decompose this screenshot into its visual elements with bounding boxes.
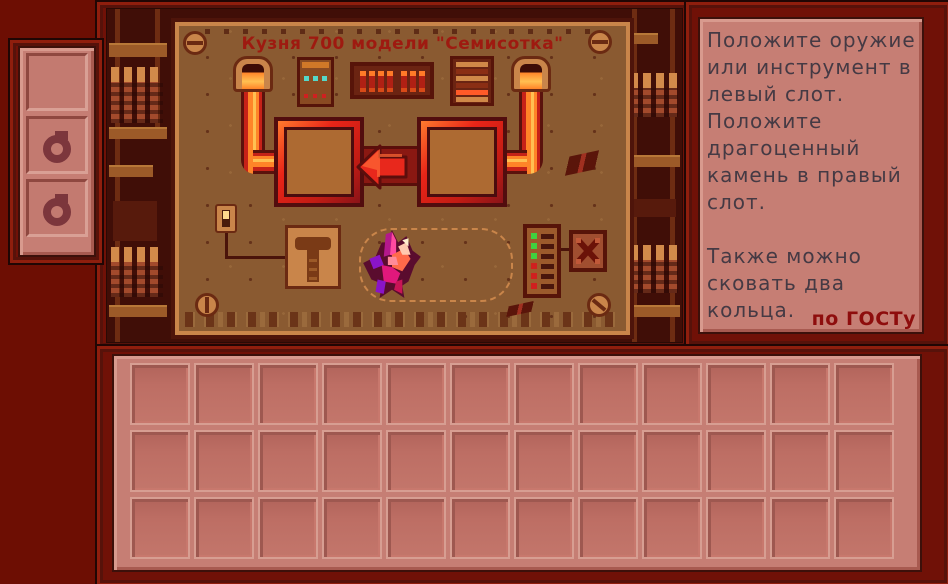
inventory-slot[interactable]: [386, 430, 446, 492]
inventory-panel-face: [112, 354, 922, 572]
indicator-light: [322, 76, 327, 81]
wire-decor: [225, 256, 287, 259]
instruction-panel-face: Положите оружие или инструмент в левый с…: [698, 17, 924, 334]
vent-panel: [450, 56, 494, 106]
led-row: [531, 241, 557, 251]
ring-slot[interactable]: [26, 53, 88, 111]
screw-icon: [183, 31, 207, 55]
x-panel: [569, 230, 607, 272]
indicator-light: [313, 76, 318, 81]
inventory-window: [95, 344, 948, 584]
led-row: [531, 251, 557, 261]
ring-panel-window: [8, 38, 104, 265]
led-light-green: [531, 253, 537, 259]
vent-bar-decor: [456, 76, 488, 81]
forge-ui-screen: Кузня 700 модели "Семисотка": [0, 0, 948, 584]
inventory-slot[interactable]: [258, 430, 318, 492]
weapon-tool-slot-face: [284, 127, 354, 197]
inventory-slot[interactable]: [834, 430, 894, 492]
ring-icon: [43, 135, 71, 163]
led-light-red: [531, 273, 537, 279]
inventory-slot[interactable]: [322, 497, 382, 559]
x-mark-icon: [573, 234, 603, 268]
inventory-slot[interactable]: [578, 430, 638, 492]
inventory-slot[interactable]: [834, 363, 894, 425]
inventory-slot[interactable]: [450, 497, 510, 559]
inventory-slot[interactable]: [194, 430, 254, 492]
inventory-slot[interactable]: [322, 430, 382, 492]
led-bar-decor: [541, 274, 554, 279]
switch-decor: [410, 71, 416, 92]
inventory-slot[interactable]: [706, 430, 766, 492]
screw-icon: [588, 30, 612, 54]
left-machinery-decor: [107, 9, 171, 342]
machine-box-decor: [113, 201, 157, 241]
switch-decor: [378, 71, 384, 92]
radiator-decor: [111, 247, 163, 297]
indicator-light: [304, 76, 309, 81]
inventory-slot[interactable]: [194, 497, 254, 559]
inventory-slot[interactable]: [578, 497, 638, 559]
pipe-bar-decor: [109, 305, 167, 317]
led-light-red: [531, 263, 537, 269]
led-row: [531, 231, 557, 241]
switch-bank-panel: [350, 62, 434, 99]
weapon-tool-slot[interactable]: [274, 117, 364, 207]
inventory-slot[interactable]: [642, 497, 702, 559]
gem-slot[interactable]: [417, 117, 507, 207]
led-bar-decor: [541, 284, 554, 289]
inventory-slot[interactable]: [194, 363, 254, 425]
forge-machine-panel: Кузня 700 модели "Семисотка": [171, 18, 634, 339]
led-row: [531, 271, 557, 281]
led-bar-decor: [541, 244, 554, 249]
ring-icon: [43, 198, 71, 226]
indicator-light: [304, 94, 308, 98]
pipe-bar-decor: [109, 43, 167, 57]
gem-slot-face: [427, 127, 497, 197]
hammer-handle: [307, 240, 319, 282]
pipe-bar-decor: [109, 127, 167, 139]
radiator-decor: [630, 73, 678, 117]
inventory-slot[interactable]: [258, 497, 318, 559]
switch-decor: [419, 71, 425, 92]
pipe-bar-decor: [628, 155, 680, 167]
inventory-slot[interactable]: [130, 430, 190, 492]
radiator-decor: [111, 67, 163, 123]
inventory-slot[interactable]: [578, 363, 638, 425]
inventory-slot[interactable]: [770, 497, 830, 559]
inventory-slot[interactable]: [386, 497, 446, 559]
switch-decor: [369, 71, 375, 92]
gem-crystal-icon: [363, 230, 421, 298]
led-light-red: [531, 283, 537, 289]
screw-icon: [587, 293, 611, 317]
radiator-decor: [630, 245, 678, 293]
inventory-slot[interactable]: [834, 497, 894, 559]
inventory-slot[interactable]: [514, 497, 574, 559]
indicator-light: [313, 94, 317, 98]
toggle-switch[interactable]: [215, 204, 237, 233]
led-bar-decor: [541, 264, 554, 269]
switch-decor: [360, 71, 366, 92]
inventory-slot[interactable]: [642, 363, 702, 425]
inventory-slot[interactable]: [706, 363, 766, 425]
led-row: [531, 261, 557, 271]
forge-window-interior: Кузня 700 модели "Семисотка": [106, 8, 683, 343]
inventory-slot[interactable]: [450, 363, 510, 425]
inventory-slot[interactable]: [130, 497, 190, 559]
inventory-slot[interactable]: [514, 430, 574, 492]
vent-bar-decor: [456, 62, 488, 67]
instruction-text: Положите оружие или инструмент в левый с…: [707, 27, 919, 324]
indicator-light: [322, 94, 326, 98]
pipe-socket-right: [511, 56, 551, 92]
inventory-slot[interactable]: [642, 430, 702, 492]
inventory-grid: [130, 363, 894, 559]
switch-decor: [387, 71, 393, 92]
vent-bar-decor: [456, 69, 488, 74]
led-panel: [523, 224, 561, 298]
led-light-green: [531, 243, 537, 249]
led-row: [531, 281, 557, 291]
pipe-socket-left: [233, 56, 273, 92]
right-machinery-decor: [626, 9, 682, 342]
vent-bar-decor: [456, 83, 488, 88]
instruction-window: Положите оружие или инструмент в левый с…: [684, 0, 948, 349]
pipe-bar-decor: [109, 165, 153, 177]
led-bar-decor: [541, 234, 554, 239]
led-bar-decor: [541, 254, 554, 259]
inventory-slot[interactable]: [386, 363, 446, 425]
gost-stamp: по ГОСТу: [812, 308, 916, 330]
inventory-slot[interactable]: [770, 363, 830, 425]
left-arrow-icon: [356, 139, 408, 195]
indicator-panel: [297, 57, 334, 107]
indicator-bar-decor: [302, 62, 329, 68]
screw-icon: [195, 293, 219, 317]
pipe-bar-decor: [628, 305, 680, 317]
inventory-slot[interactable]: [770, 430, 830, 492]
inventory-slot[interactable]: [706, 497, 766, 559]
inventory-slot[interactable]: [322, 363, 382, 425]
inventory-slot[interactable]: [130, 363, 190, 425]
machine-box-decor: [630, 199, 676, 217]
vent-bar-decor: [456, 97, 488, 102]
hammer-panel: [285, 225, 341, 289]
forge-window: Кузня 700 модели "Семисотка": [95, 0, 692, 351]
switch-decor: [401, 71, 407, 92]
inventory-slot[interactable]: [258, 363, 318, 425]
ring-slot[interactable]: [26, 116, 88, 174]
ring-panel-face: [18, 46, 96, 257]
led-light-green: [531, 233, 537, 239]
inventory-slot[interactable]: [514, 363, 574, 425]
vent-bar-decor: [456, 90, 488, 95]
ring-slot[interactable]: [26, 179, 88, 237]
machine-title: Кузня 700 модели "Семисотка": [175, 34, 630, 54]
inventory-slot[interactable]: [450, 430, 510, 492]
led-panel-lights: [531, 231, 557, 291]
